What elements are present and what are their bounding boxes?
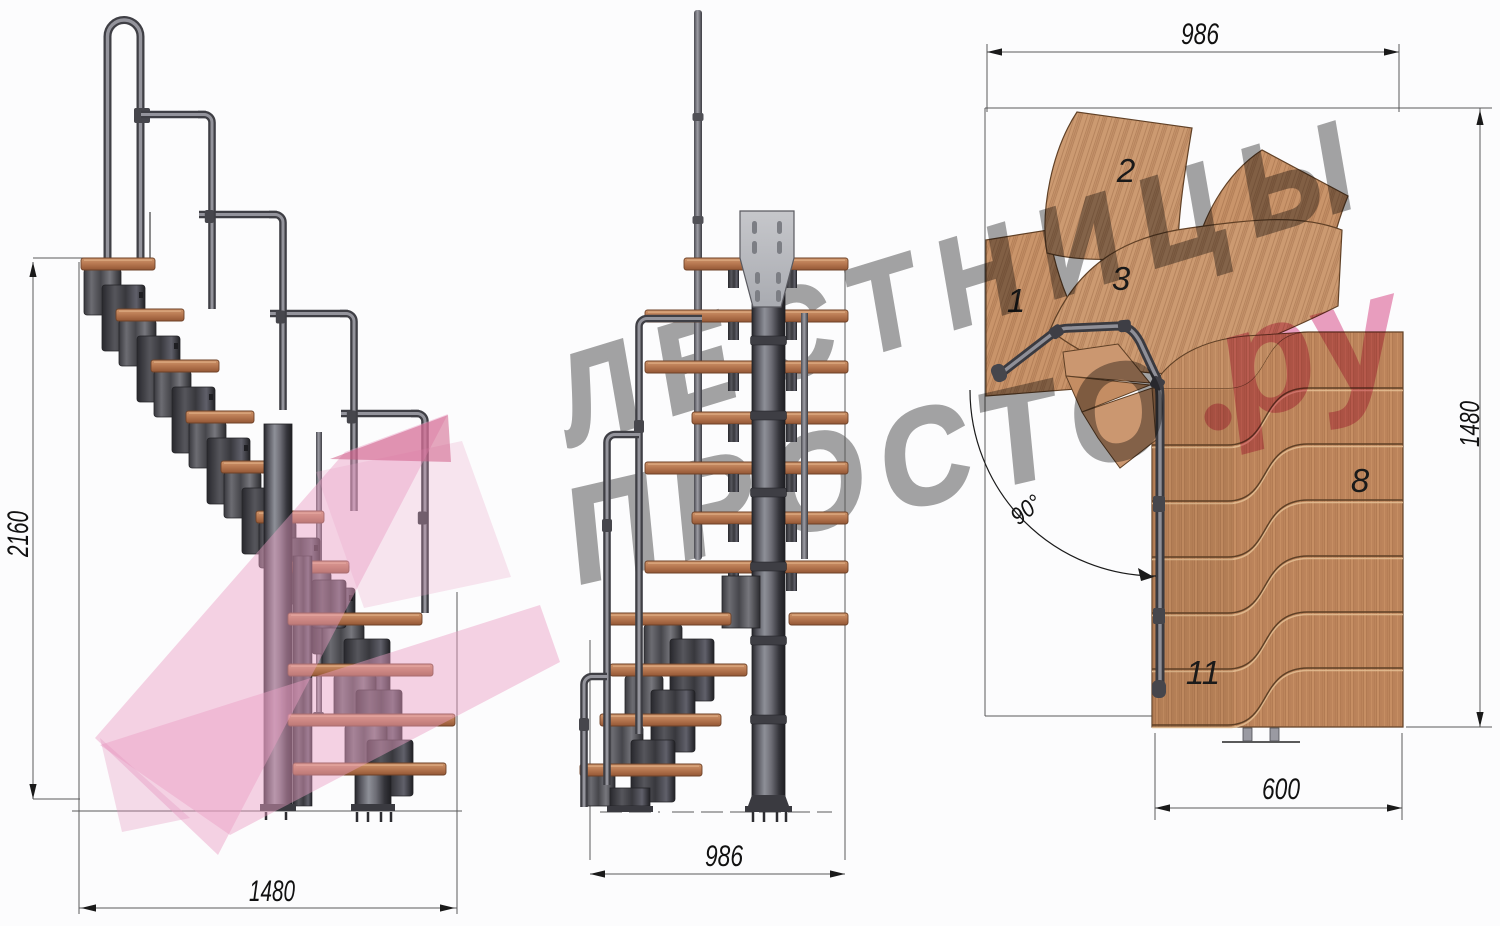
svg-text:8: 8 (1351, 462, 1370, 499)
svg-text:11: 11 (1186, 654, 1220, 691)
svg-text:986: 986 (705, 840, 743, 873)
svg-text:1480: 1480 (249, 875, 295, 908)
svg-text:600: 600 (1262, 773, 1300, 806)
svg-text:1480: 1480 (1454, 401, 1485, 447)
svg-text:2160: 2160 (2, 511, 35, 558)
svg-text:986: 986 (1181, 18, 1219, 51)
